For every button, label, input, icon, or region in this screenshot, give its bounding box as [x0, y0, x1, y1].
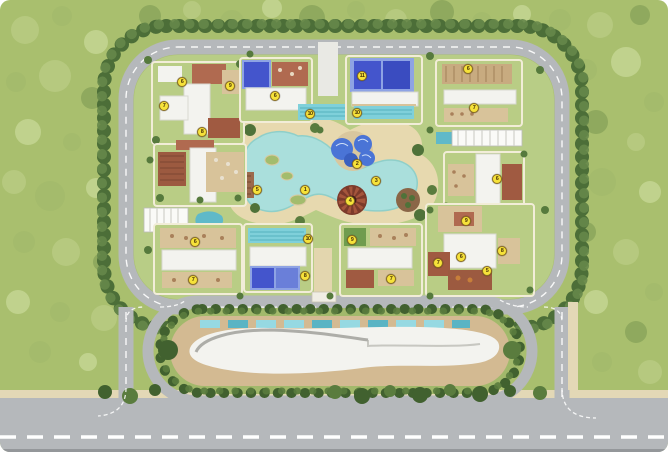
site-plan-art	[0, 0, 668, 452]
plot-marker[interactable]: 8	[197, 127, 207, 137]
plot-marker[interactable]: 6	[456, 252, 466, 262]
plot-marker[interactable]: 6	[463, 64, 473, 74]
plot-marker[interactable]: 10	[305, 109, 315, 119]
plot-marker[interactable]: 10	[303, 234, 313, 244]
plot-marker[interactable]: 7	[469, 103, 479, 113]
master-plan-map: 1234567896101110676967856710897	[0, 0, 668, 452]
plot-marker[interactable]: 7	[433, 258, 443, 268]
plot-marker[interactable]: 2	[352, 159, 362, 169]
cluster-right-bottom	[426, 204, 534, 296]
cluster-bottom-center	[244, 224, 312, 292]
plot-marker[interactable]: 7	[159, 101, 169, 111]
plot-marker[interactable]: 6	[177, 77, 187, 87]
plot-marker[interactable]: 5	[482, 266, 492, 276]
plot-marker[interactable]: 1	[300, 185, 310, 195]
plot-marker[interactable]: 6	[190, 237, 200, 247]
palm-island	[396, 188, 420, 212]
plot-marker[interactable]: 7	[386, 274, 396, 284]
parking-canopy-right	[436, 130, 522, 146]
plot-marker[interactable]: 3	[371, 176, 381, 186]
plot-marker[interactable]: 11	[357, 71, 367, 81]
clubhouse-island	[148, 301, 532, 401]
cluster-right-mid	[443, 151, 528, 211]
cluster-bottom-left	[154, 224, 242, 294]
screenshot: 1234567896101110676967856710897	[0, 0, 668, 452]
cluster-right-top	[436, 60, 522, 126]
central-lagoon	[223, 114, 439, 226]
plot-marker[interactable]: 5	[252, 185, 262, 195]
cluster-left-mid	[154, 140, 246, 206]
plot-marker[interactable]: 8	[300, 271, 310, 281]
plot-marker[interactable]: 10	[352, 108, 362, 118]
plot-marker[interactable]: 4	[345, 196, 355, 206]
plot-marker[interactable]: 9	[347, 235, 357, 245]
plot-marker[interactable]: 6	[492, 174, 502, 184]
plot-marker[interactable]: 7	[188, 275, 198, 285]
plot-marker[interactable]: 9	[225, 81, 235, 91]
plot-marker[interactable]: 8	[497, 246, 507, 256]
plot-marker[interactable]: 6	[270, 91, 280, 101]
plot-marker[interactable]: 9	[461, 216, 471, 226]
